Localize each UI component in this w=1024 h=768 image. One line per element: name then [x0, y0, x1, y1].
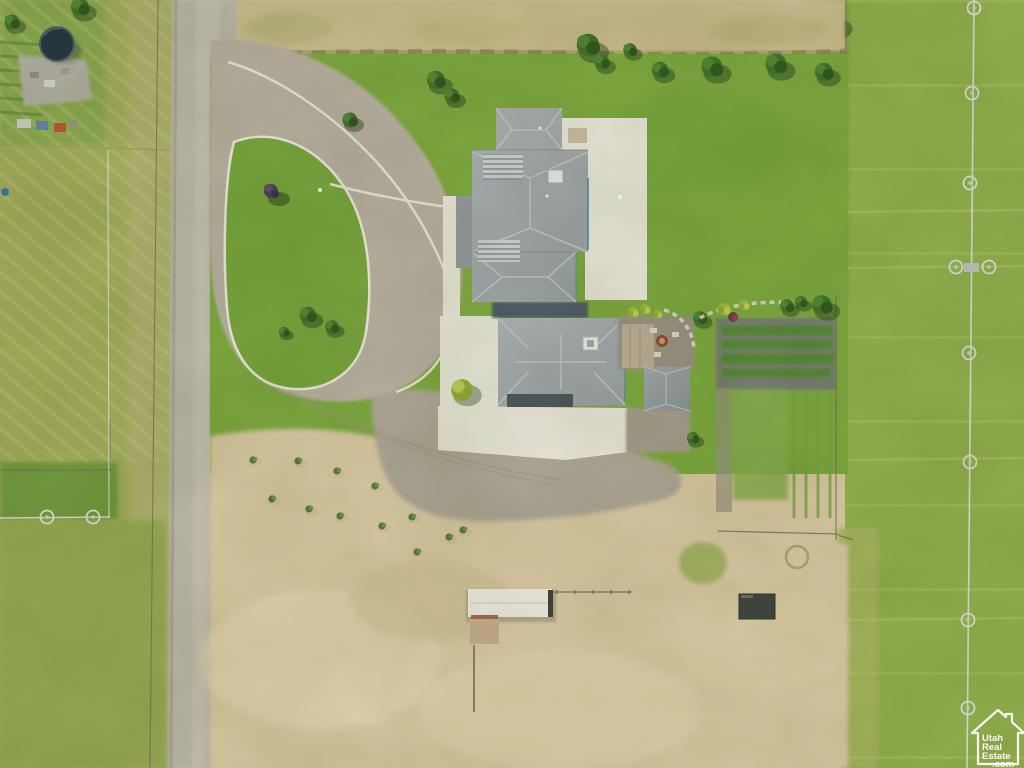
photo-canvas: Utah Real Estate .com: [0, 0, 1024, 768]
watermark-line-4: .com: [992, 759, 1014, 768]
aerial-property-photo: Utah Real Estate .com: [0, 0, 1024, 768]
photo-grain-overlay: [0, 0, 1024, 768]
